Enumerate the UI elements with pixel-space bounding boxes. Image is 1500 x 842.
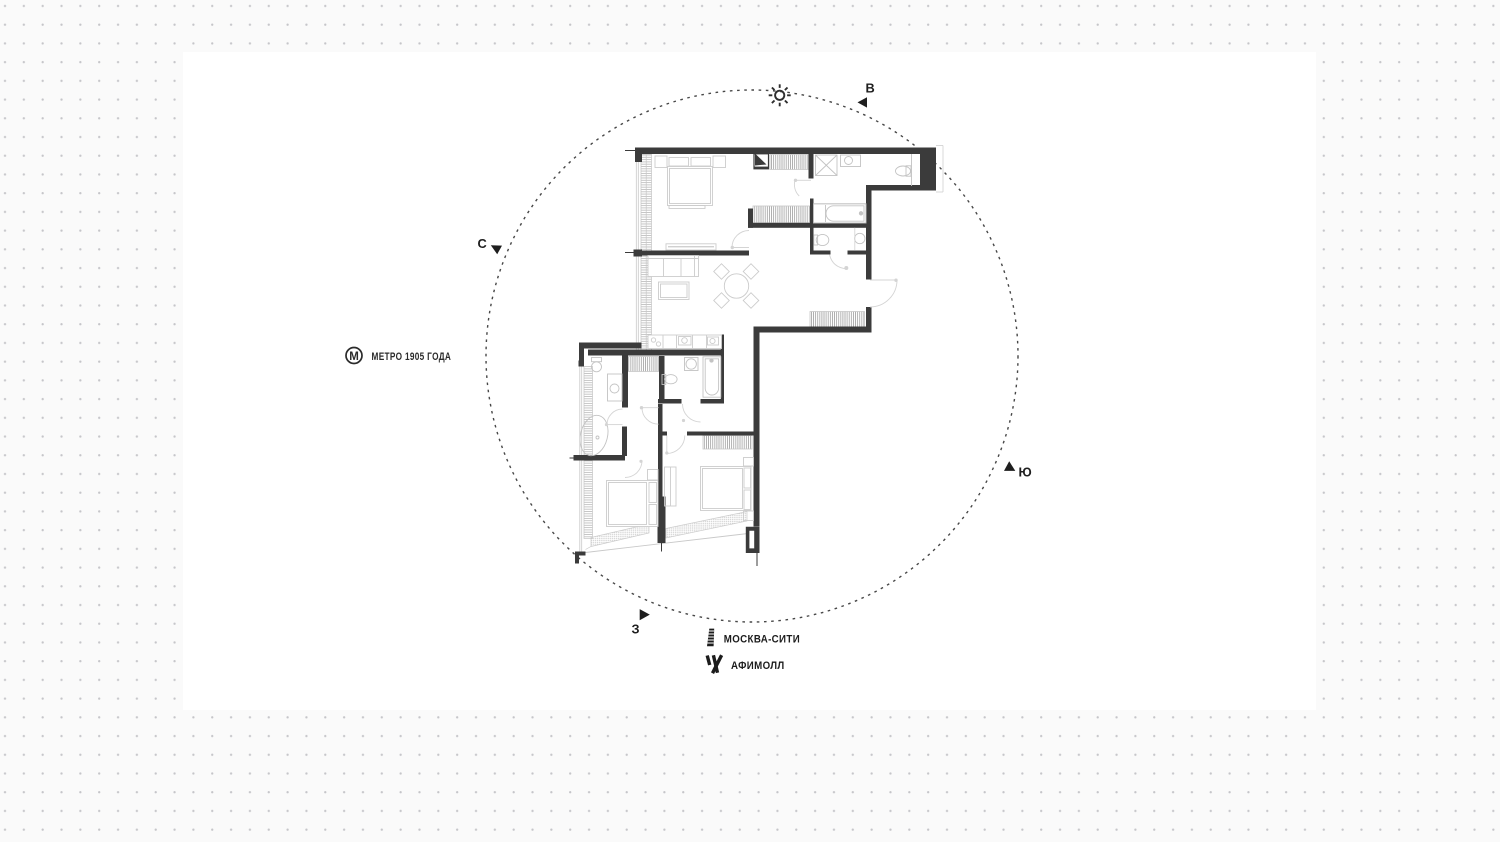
svg-text:В: В xyxy=(866,81,875,96)
svg-text:М: М xyxy=(349,351,359,363)
svg-text:З: З xyxy=(632,622,640,637)
svg-text:Ю: Ю xyxy=(1019,464,1032,479)
svg-text:МОСКВА-СИТИ: МОСКВА-СИТИ xyxy=(724,634,800,646)
svg-text:МЕТРО 1905 ГОДА: МЕТРО 1905 ГОДА xyxy=(372,351,452,363)
svg-text:АФИМОЛЛ: АФИМОЛЛ xyxy=(731,660,785,672)
svg-text:С: С xyxy=(478,236,487,251)
